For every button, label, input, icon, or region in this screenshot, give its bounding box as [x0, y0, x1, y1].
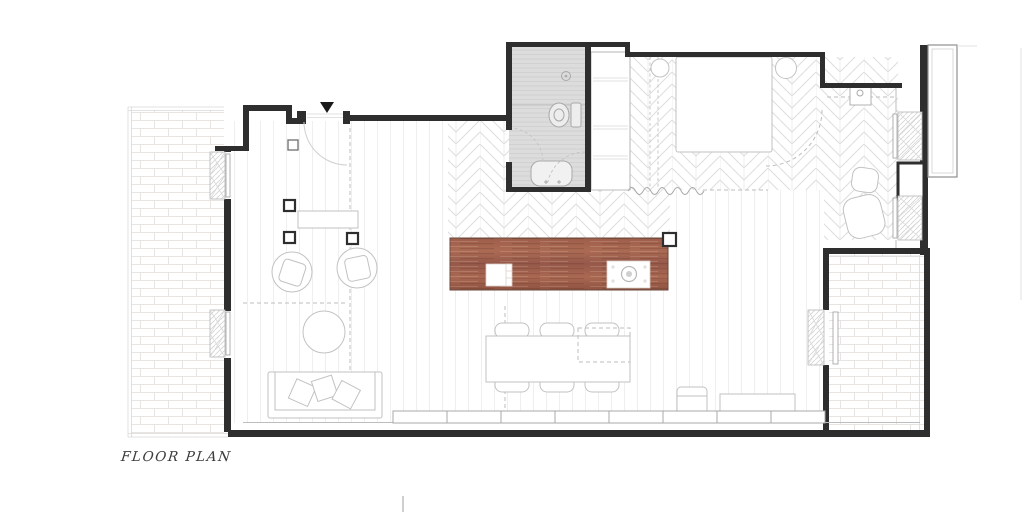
bed [676, 57, 772, 152]
facade-panel [771, 411, 825, 423]
console-shelf [298, 211, 358, 228]
entry-threshold [307, 114, 343, 118]
window-shutter [898, 112, 922, 160]
facade-panel [609, 411, 663, 423]
island-cooktop-icon [607, 261, 650, 288]
armchair-icon [337, 248, 377, 288]
facade-panel [447, 411, 501, 423]
window-frame [226, 154, 230, 197]
floor-plan-canvas: FLOOR PLAN [0, 0, 1024, 514]
dining-area [486, 323, 630, 392]
dining-table [486, 336, 630, 382]
exterior-sliding-panel [928, 45, 1021, 300]
terrace-right-paving [829, 254, 924, 430]
bedside-table-right [776, 58, 797, 79]
column [284, 200, 295, 211]
column [347, 233, 358, 244]
column-light [288, 140, 298, 150]
washbasin-icon [531, 161, 572, 186]
facade-panel [663, 411, 717, 423]
facade-panel [555, 411, 609, 423]
window-shutter [898, 196, 922, 240]
window-frame [893, 114, 897, 158]
armchair-icon [272, 252, 312, 292]
wall-pier [898, 163, 924, 199]
window-frame [893, 198, 897, 238]
facade-panel [717, 411, 771, 423]
facade-panel [393, 411, 447, 423]
terrace-right [829, 254, 924, 430]
wardrobe-body [591, 52, 630, 190]
column [284, 232, 295, 243]
window-shutter [210, 310, 225, 357]
sofa-icon [268, 372, 382, 418]
coffee-table-icon [303, 311, 345, 353]
wardrobe [591, 52, 630, 190]
entry-direction-marker [320, 102, 334, 113]
window-frame [833, 312, 838, 364]
window-frame [226, 312, 230, 355]
window-shutter [210, 152, 225, 199]
floor-plan-drawing [0, 0, 1024, 514]
vanity-basin-icon [850, 86, 871, 105]
bedside-table-left [651, 59, 669, 77]
bathroom [509, 45, 588, 190]
floor-plan-title: FLOOR PLAN [120, 449, 232, 465]
shower-drain-dot [565, 75, 568, 78]
kitchen-island [450, 233, 676, 290]
toilet-icon [549, 103, 581, 127]
facade-panel [501, 411, 555, 423]
window-shutter [808, 310, 824, 365]
island-column [663, 233, 676, 246]
island-sink-icon [486, 264, 512, 286]
